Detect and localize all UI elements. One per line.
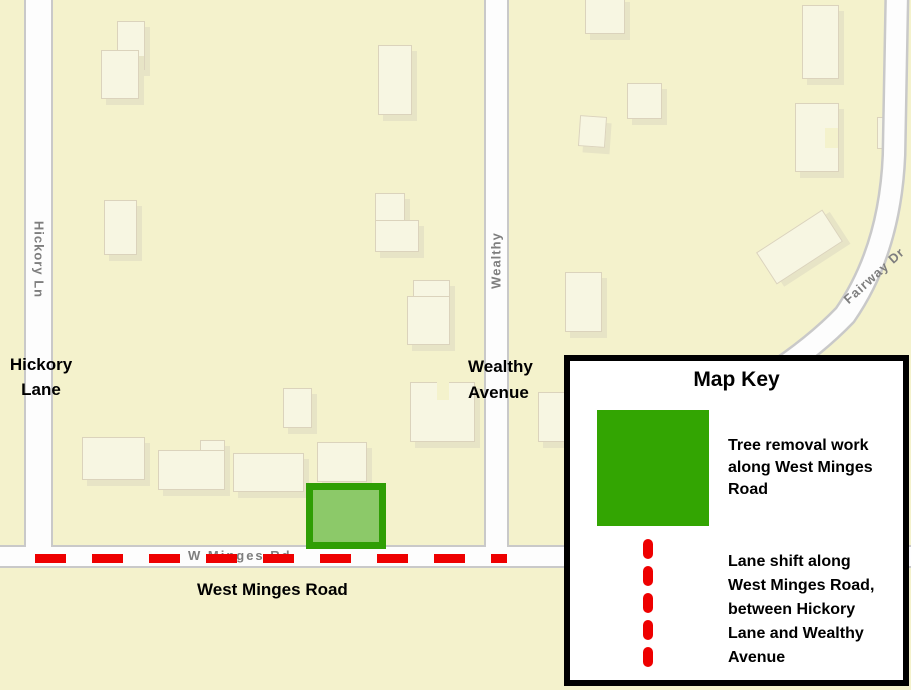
tree-removal-swatch (597, 410, 709, 526)
key-dash-segment (643, 647, 653, 667)
map-canvas: Fairway Dr Hickory Ln Wealthy W Minges R… (0, 0, 911, 690)
map-key-title: Map Key (570, 368, 903, 392)
key-dash-segment (643, 620, 653, 640)
hickory-lane-label: Hickory Lane (3, 352, 79, 402)
wealthy-avenue-label: Wealthy Avenue (468, 354, 533, 406)
tree-removal-work-zone (306, 483, 386, 549)
map-key-panel: Map Key Tree removal work along West Min… (564, 355, 909, 686)
hickory-road-label: Hickory Ln (32, 218, 47, 302)
west-minges-road-label: West Minges Road (197, 577, 348, 602)
lane-shift-dashed-line (35, 554, 507, 563)
lane-shift-swatch (643, 539, 653, 679)
key-dash-segment (643, 566, 653, 586)
key-dash-segment (643, 539, 653, 559)
tree-removal-legend-text: Tree removal work along West Minges Road (728, 435, 873, 501)
key-dash-segment (643, 593, 653, 613)
wealthy-road-label: Wealthy (489, 219, 504, 303)
lane-shift-legend-text: Lane shift along West Minges Road, betwe… (728, 550, 874, 670)
